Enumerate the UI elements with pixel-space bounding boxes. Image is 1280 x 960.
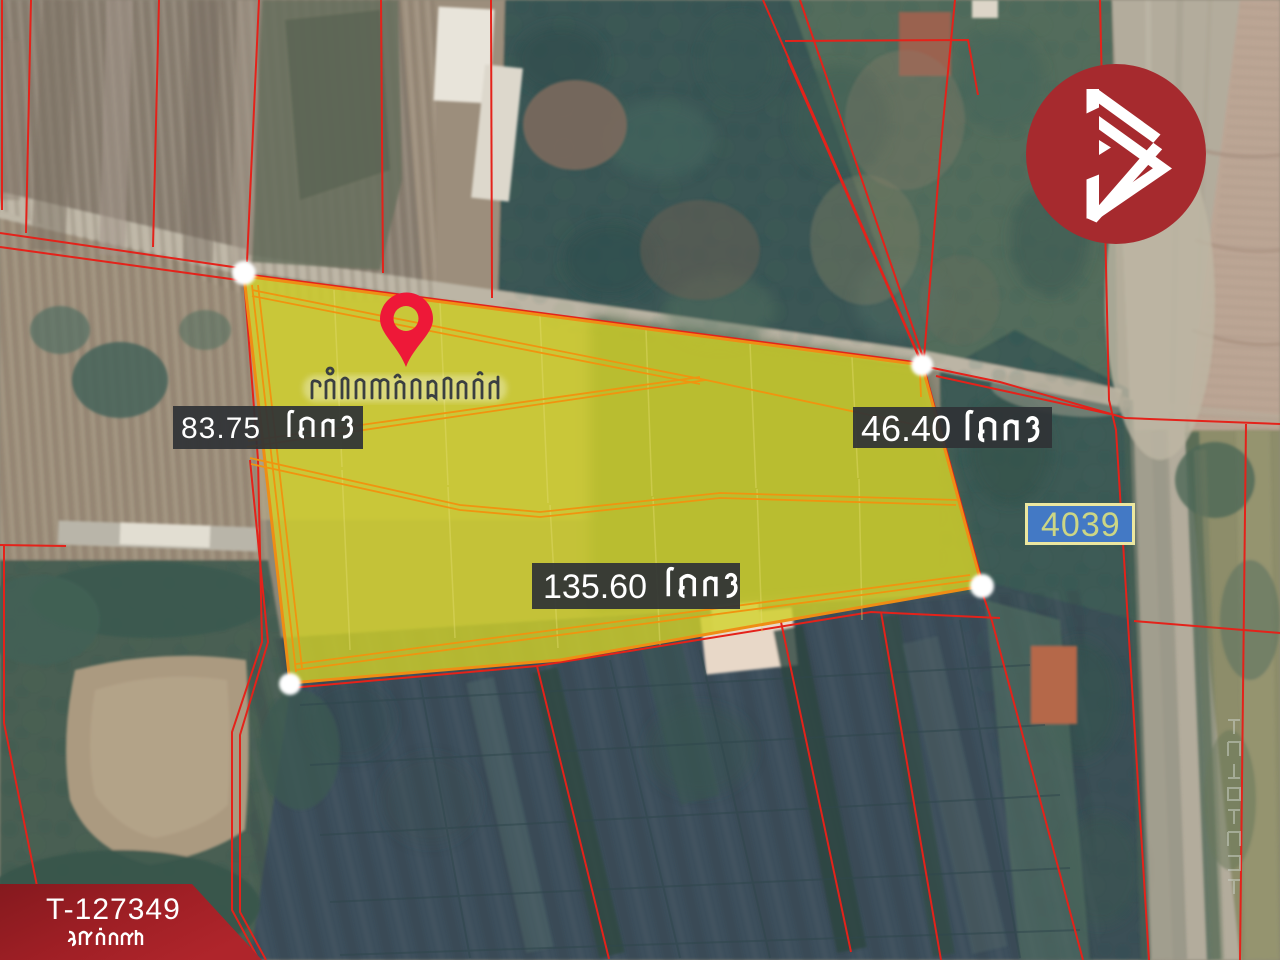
svg-text:T-127349: T-127349 — [46, 893, 181, 926]
svg-text:83.75: 83.75 — [181, 412, 261, 445]
svg-text:4039: 4039 — [1041, 506, 1121, 544]
svg-text:46.40: 46.40 — [861, 408, 951, 449]
svg-text:135.60: 135.60 — [543, 568, 647, 606]
